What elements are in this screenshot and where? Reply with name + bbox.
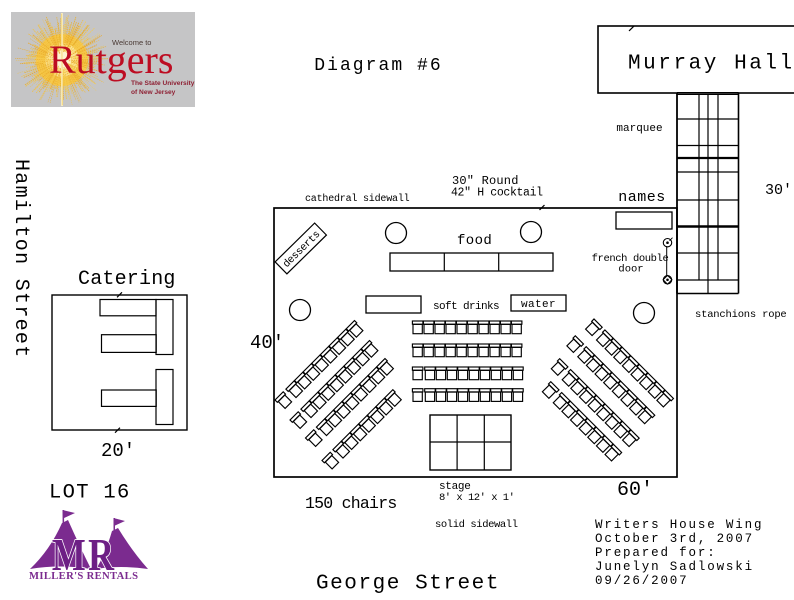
svg-text:Rutgers: Rutgers <box>49 37 173 82</box>
svg-text:Junelyn Sadlowski: Junelyn Sadlowski <box>595 560 754 574</box>
svg-text:Catering: Catering <box>78 268 176 291</box>
svg-text:09/26/2007: 09/26/2007 <box>595 574 689 588</box>
svg-text:LOT 16: LOT 16 <box>49 482 131 505</box>
svg-text:names: names <box>618 189 666 206</box>
svg-text:60': 60' <box>617 479 653 502</box>
svg-text:October 3rd, 2007: October 3rd, 2007 <box>595 532 754 546</box>
svg-text:20': 20' <box>101 440 135 462</box>
svg-text:food: food <box>457 233 492 249</box>
svg-text:of New Jersey: of New Jersey <box>131 89 176 96</box>
svg-text:soft drinks: soft drinks <box>433 301 499 313</box>
svg-text:marquee: marquee <box>616 123 662 135</box>
svg-text:solid sidewall: solid sidewall <box>435 519 518 531</box>
svg-text:cathedral sidewall: cathedral sidewall <box>305 193 410 205</box>
svg-text:stanchions rope: stanchions rope <box>695 309 787 321</box>
svg-text:Prepared for:: Prepared for: <box>595 546 717 560</box>
svg-text:George Street: George Street <box>316 573 500 596</box>
svg-text:door: door <box>618 264 643 276</box>
svg-text:Hamilton Street: Hamilton Street <box>9 159 32 359</box>
svg-text:150 chairs: 150 chairs <box>305 494 397 513</box>
svg-text:30': 30' <box>765 182 792 199</box>
svg-text:8' x 12' x 1': 8' x 12' x 1' <box>439 492 514 504</box>
svg-text:Writers House Wing: Writers House Wing <box>595 518 763 532</box>
svg-text:Murray Hall: Murray Hall <box>628 52 794 75</box>
svg-text:Diagram #6: Diagram #6 <box>314 56 443 76</box>
svg-text:water: water <box>521 299 556 311</box>
svg-text:40': 40' <box>250 332 284 354</box>
svg-text:42" H cocktail: 42" H cocktail <box>451 187 543 200</box>
svg-text:The State University: The State University <box>131 80 195 87</box>
svg-text:MILLER'S RENTALS: MILLER'S RENTALS <box>29 571 138 582</box>
